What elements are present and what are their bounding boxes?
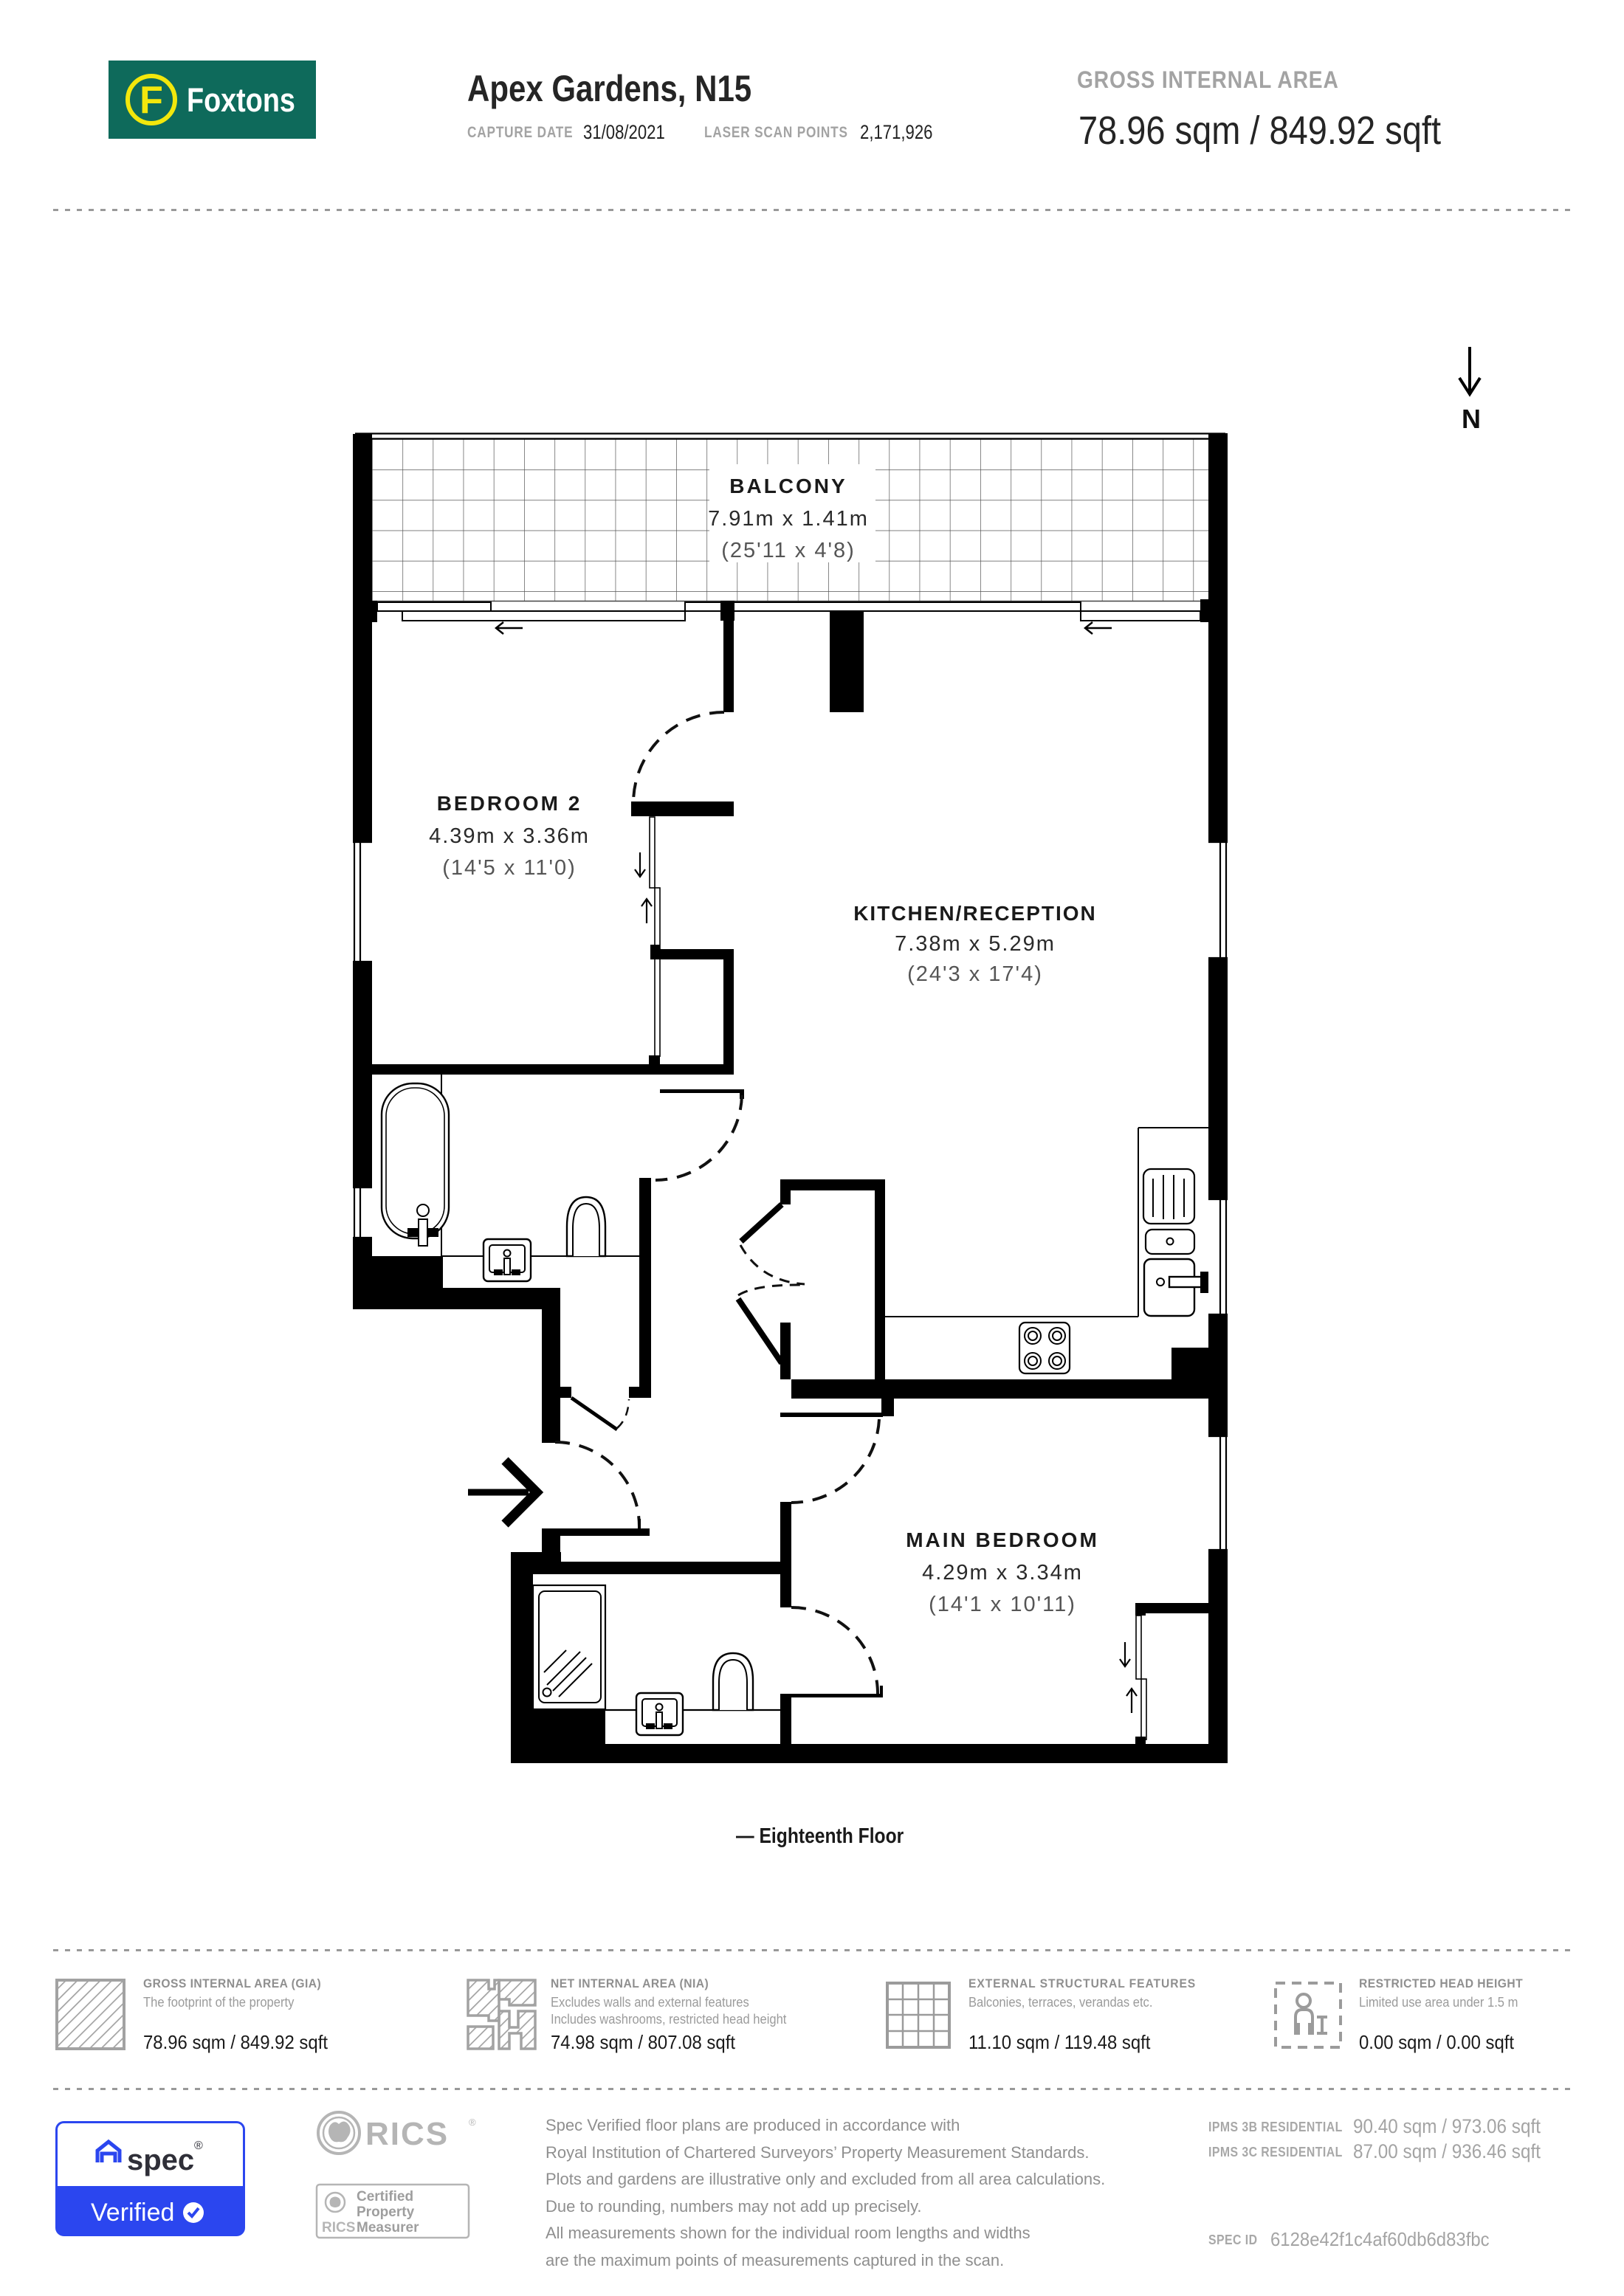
- svg-text:7.91m x 1.41m: 7.91m x 1.41m: [708, 507, 869, 531]
- svg-text:4.39m x 3.36m: 4.39m x 3.36m: [429, 824, 590, 848]
- svg-text:— Eighteenth Floor: — Eighteenth Floor: [736, 1824, 904, 1847]
- svg-text:RICS: RICS: [322, 2220, 355, 2235]
- svg-text:BALCONY: BALCONY: [729, 475, 847, 497]
- svg-text:RICS: RICS: [365, 2116, 449, 2152]
- svg-text:4.29m x 3.34m: 4.29m x 3.34m: [922, 1561, 1083, 1585]
- svg-text:Measurer: Measurer: [357, 2220, 419, 2235]
- svg-text:Property: Property: [357, 2204, 415, 2220]
- svg-text:(25'11 x 4'8): (25'11 x 4'8): [721, 539, 856, 562]
- svg-text:(14'1 x 10'11): (14'1 x 10'11): [929, 1593, 1076, 1616]
- svg-text:BEDROOM 2: BEDROOM 2: [437, 792, 582, 815]
- svg-text:Certified: Certified: [357, 2189, 413, 2204]
- svg-text:®: ®: [194, 2140, 203, 2152]
- svg-text:®: ®: [469, 2117, 476, 2128]
- svg-text:spec: spec: [127, 2144, 194, 2176]
- svg-text:7.38m x 5.29m: 7.38m x 5.29m: [895, 932, 1056, 956]
- svg-text:(14'5 x 11'0): (14'5 x 11'0): [442, 856, 577, 880]
- svg-text:MAIN BEDROOM: MAIN BEDROOM: [906, 1528, 1099, 1551]
- svg-text:Verified: Verified: [91, 2199, 174, 2227]
- svg-text:N: N: [1462, 404, 1481, 434]
- svg-text:(24'3 x 17'4): (24'3 x 17'4): [907, 962, 1043, 986]
- svg-text:KITCHEN/RECEPTION: KITCHEN/RECEPTION: [853, 902, 1097, 925]
